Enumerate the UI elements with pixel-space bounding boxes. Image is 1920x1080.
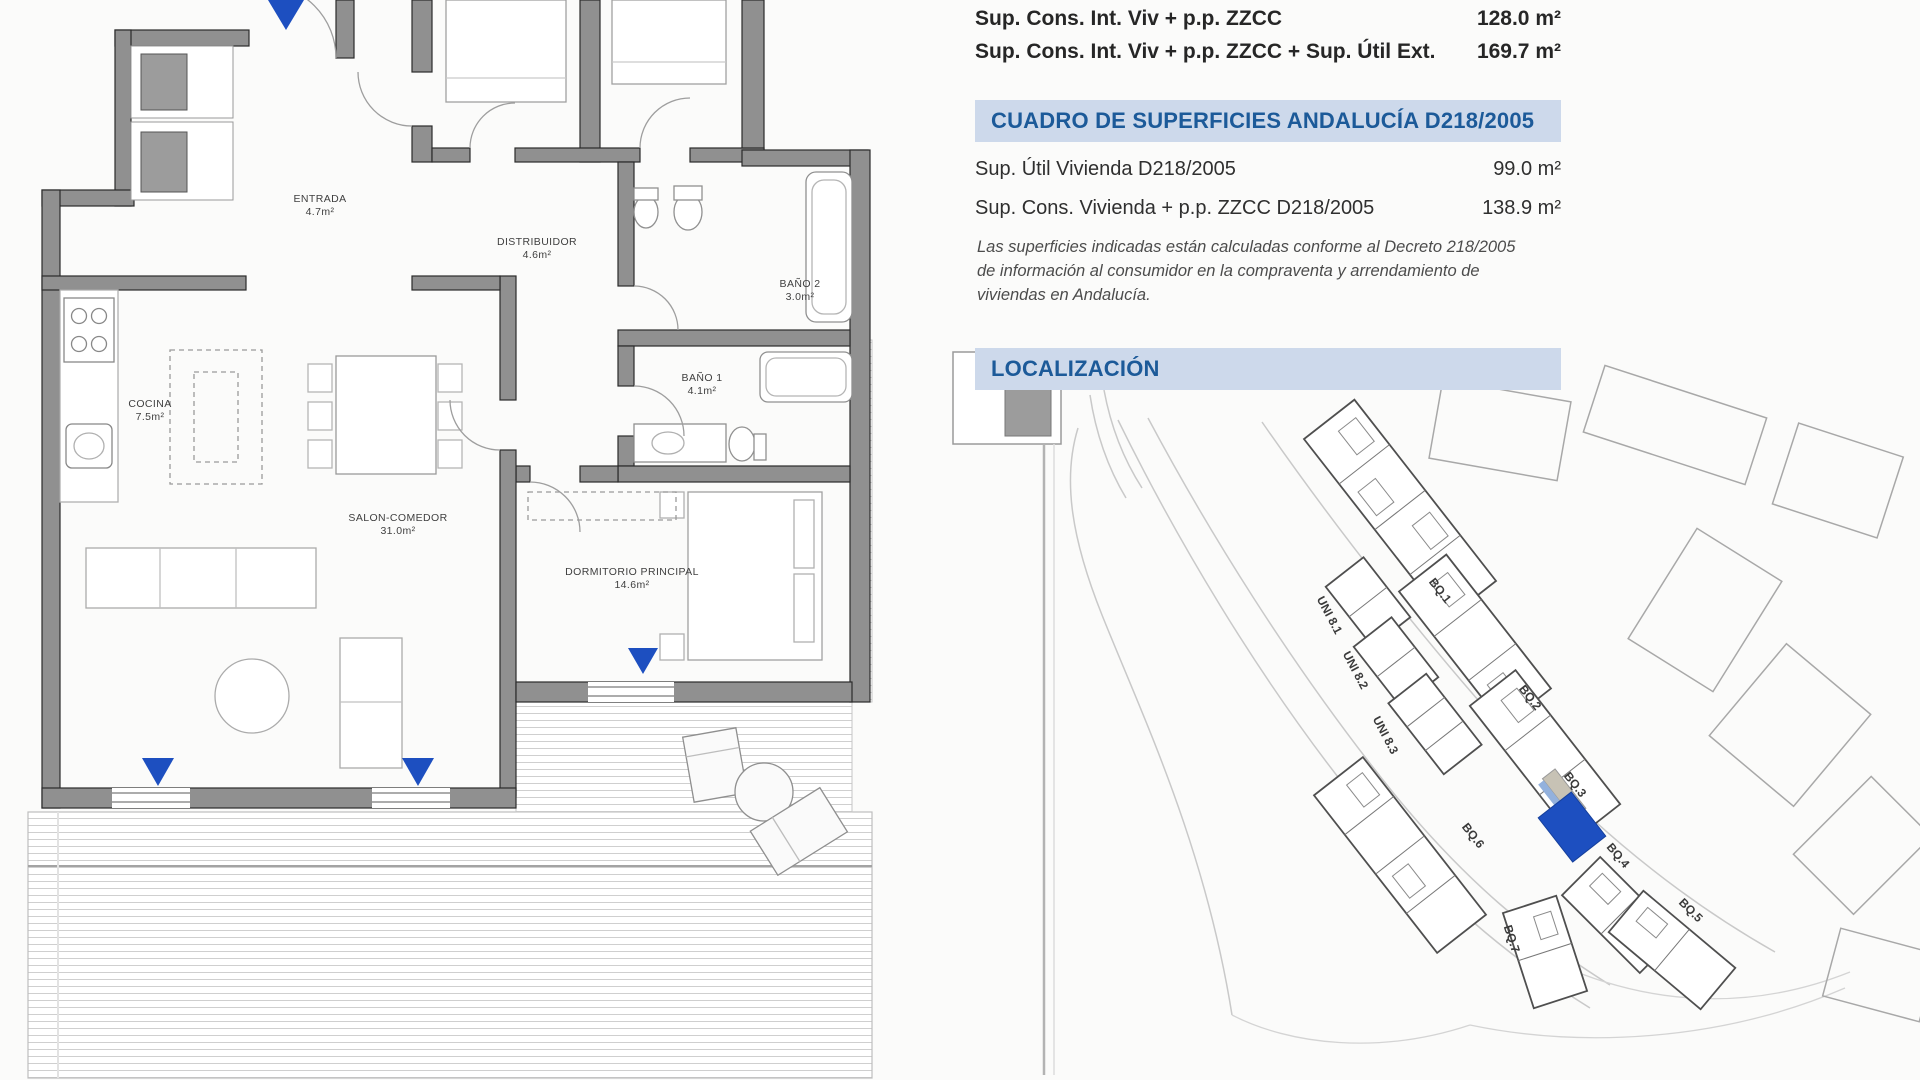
cuadro-superficies-header: CUADRO DE SUPERFICIES ANDALUCÍA D218/200… bbox=[975, 100, 1561, 142]
bedroom-arrow-icon bbox=[628, 648, 658, 674]
room-label-distribuidor: DISTRIBUIDOR 4.6m² bbox=[497, 236, 577, 262]
outdoor-unit bbox=[953, 352, 1061, 1075]
location-map: BQ.1 BQ.2 BQ.3 BQ.4 BQ.5 BQ.6 BQ.7 UNI 8… bbox=[1070, 365, 1920, 1043]
room-label-entrada: ENTRADA 4.7m² bbox=[294, 193, 347, 219]
room-label-salon: SALON-COMEDOR 31.0m² bbox=[348, 512, 447, 538]
closets bbox=[131, 46, 233, 200]
map-block-bq6 bbox=[1314, 757, 1486, 953]
cuadro-row-2: Sup. Cons. Vivienda + p.p. ZZCC D218/200… bbox=[975, 197, 1561, 220]
cuadro-row-value: 99.0 m² bbox=[1493, 158, 1561, 181]
terrace-arrow-icon bbox=[142, 758, 174, 786]
surface-summary-value: 128.0 m² bbox=[1477, 7, 1561, 31]
entry-arrow-icon bbox=[268, 0, 304, 30]
room-label-cocina: COCINA 7.5m² bbox=[128, 398, 171, 424]
terrace-arrow-icon bbox=[402, 758, 434, 786]
decreto-note: Las superficies indicadas están calculad… bbox=[977, 236, 1533, 308]
room-label-bano2: BAÑO 2 3.0m² bbox=[780, 278, 821, 304]
cuadro-row-label: Sup. Útil Vivienda D218/2005 bbox=[975, 158, 1236, 181]
plan-and-map-graphics: BQ.1 BQ.2 BQ.3 BQ.4 BQ.5 BQ.6 BQ.7 UNI 8… bbox=[0, 0, 1920, 1080]
cuadro-row-1: Sup. Útil Vivienda D218/2005 99.0 m² bbox=[975, 158, 1561, 181]
cuadro-row-label: Sup. Cons. Vivienda + p.p. ZZCC D218/200… bbox=[975, 197, 1374, 220]
cuadro-row-value: 138.9 m² bbox=[1482, 197, 1561, 220]
map-label: BQ.6 bbox=[1459, 820, 1487, 851]
surface-summary-value: 169.7 m² bbox=[1477, 40, 1561, 64]
map-label: UNI 8.3 bbox=[1370, 714, 1402, 757]
room-label-dormitorio: DORMITORIO PRINCIPAL 14.6m² bbox=[565, 566, 699, 592]
surface-info-panel: Sup. Cons. Int. Viv + p.p. ZZCC 128.0 m²… bbox=[975, 2, 1561, 390]
surface-summary-row-2: Sup. Cons. Int. Viv + p.p. ZZCC + Sup. Ú… bbox=[975, 35, 1561, 68]
surface-summary-label: Sup. Cons. Int. Viv + p.p. ZZCC + Sup. Ú… bbox=[975, 40, 1435, 64]
surface-summary-label: Sup. Cons. Int. Viv + p.p. ZZCC bbox=[975, 7, 1282, 31]
surface-summary-row-1: Sup. Cons. Int. Viv + p.p. ZZCC 128.0 m² bbox=[975, 2, 1561, 35]
room-label-bano1: BAÑO 1 4.1m² bbox=[682, 372, 723, 398]
floorplan-sheet: BQ.1 BQ.2 BQ.3 BQ.4 BQ.5 BQ.6 BQ.7 UNI 8… bbox=[0, 0, 1920, 1080]
localizacion-header: LOCALIZACIÓN bbox=[975, 348, 1561, 390]
